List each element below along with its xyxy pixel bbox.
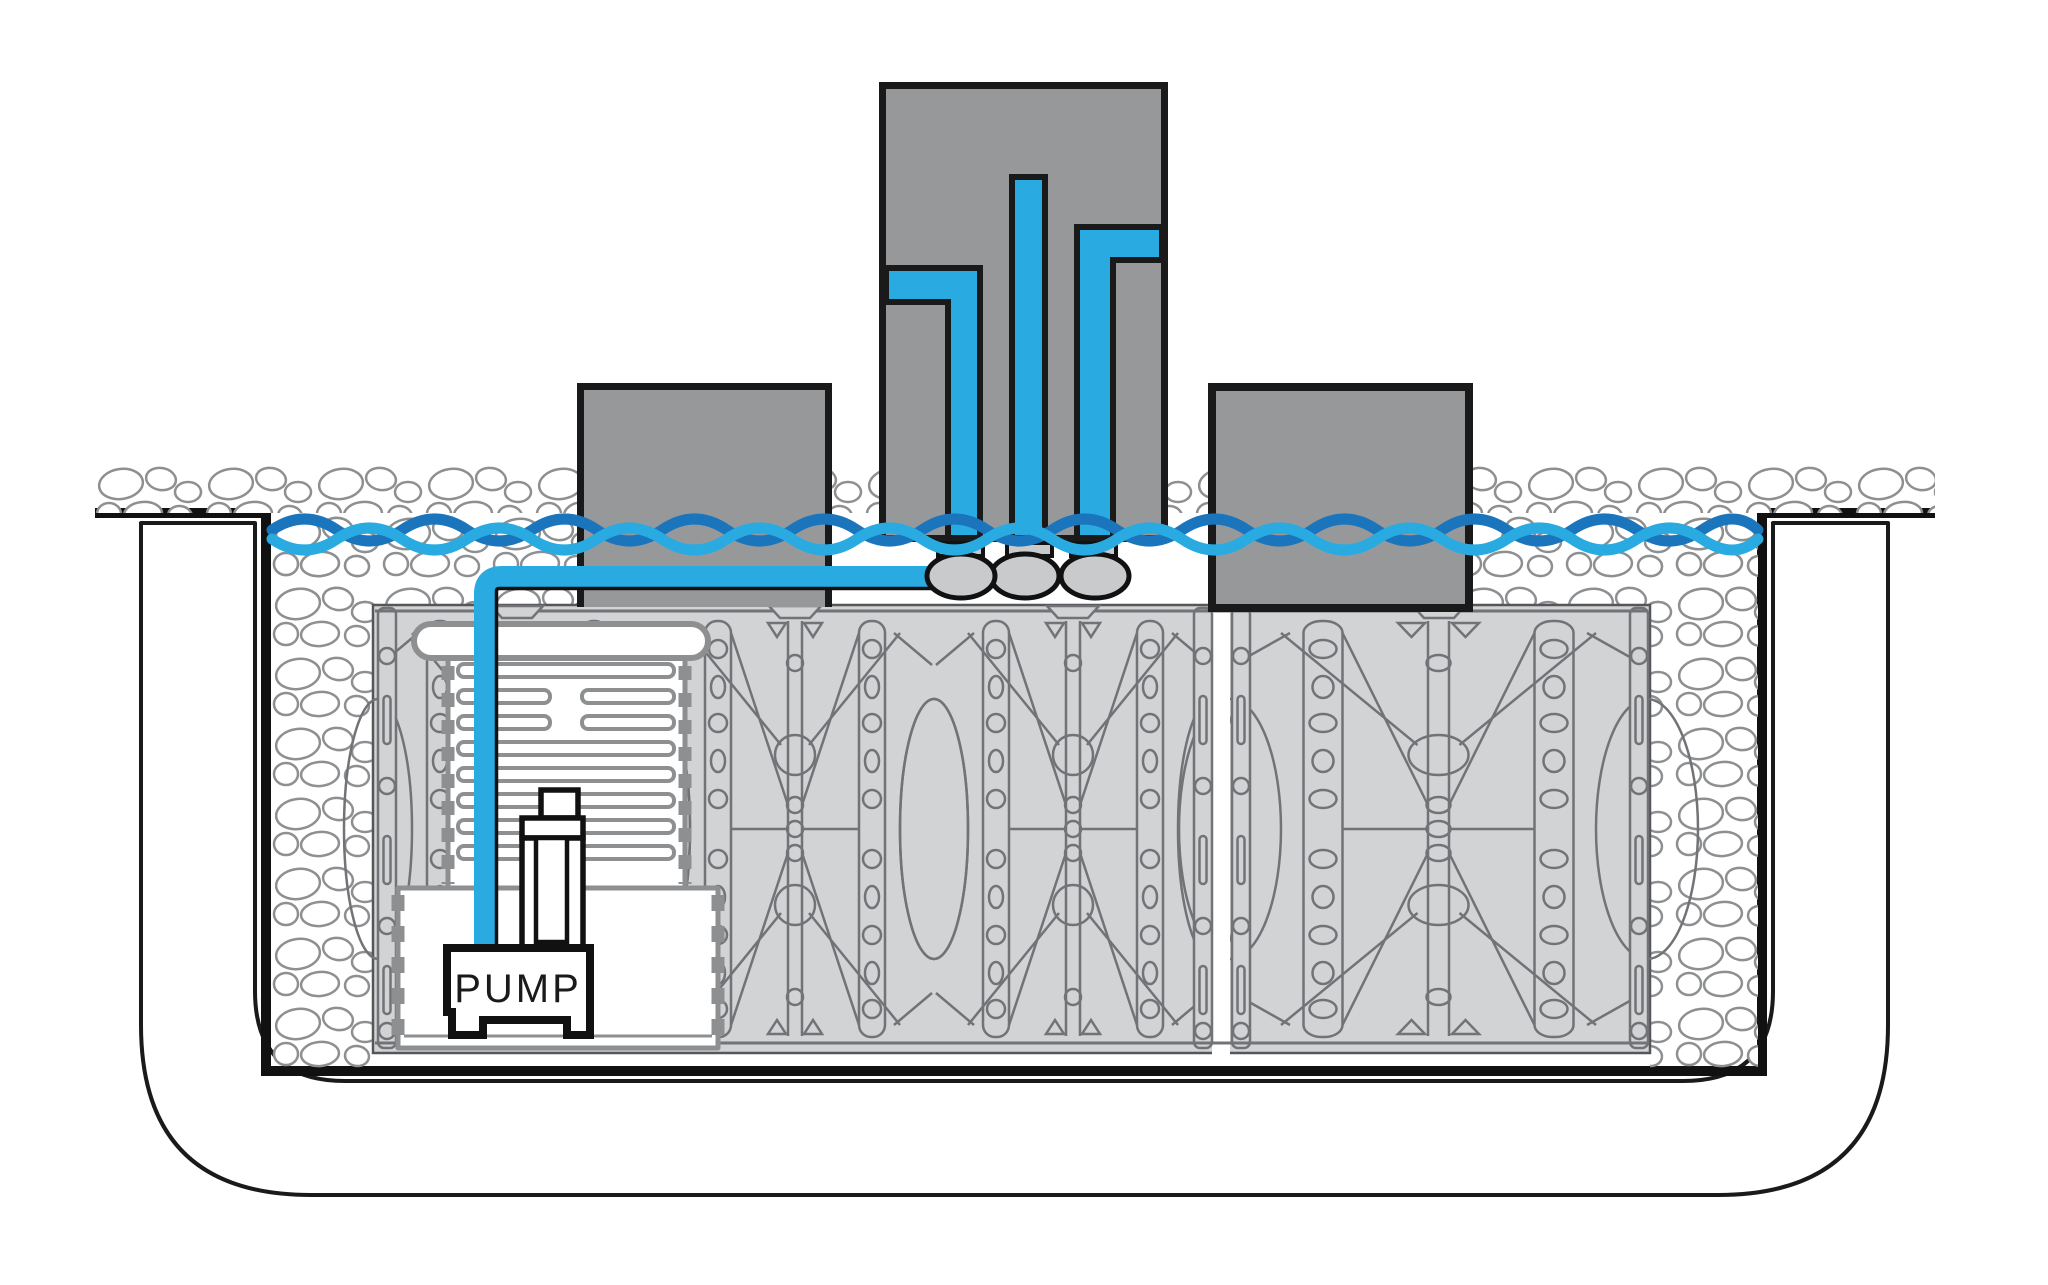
fountain-stone-right <box>1212 387 1469 608</box>
diffuser-fitting-middle <box>991 554 1059 598</box>
vault-lid <box>414 624 708 658</box>
diffuser-fitting-left <box>927 554 995 598</box>
fountain-basin-diagram: PUMP <box>0 0 2048 1285</box>
pump-label: PUMP <box>454 967 582 1011</box>
fountain-pipe-middle <box>1012 177 1045 548</box>
gravel-column-right <box>1650 512 1758 1071</box>
pump: PUMP <box>447 948 590 1035</box>
gravel-column-left <box>272 512 373 1071</box>
diffuser-fitting-right <box>1061 554 1129 598</box>
crate-seam <box>1212 603 1230 1055</box>
fountain-stone-center <box>879 82 1168 548</box>
diagram-canvas: PUMP <box>0 0 2048 1285</box>
